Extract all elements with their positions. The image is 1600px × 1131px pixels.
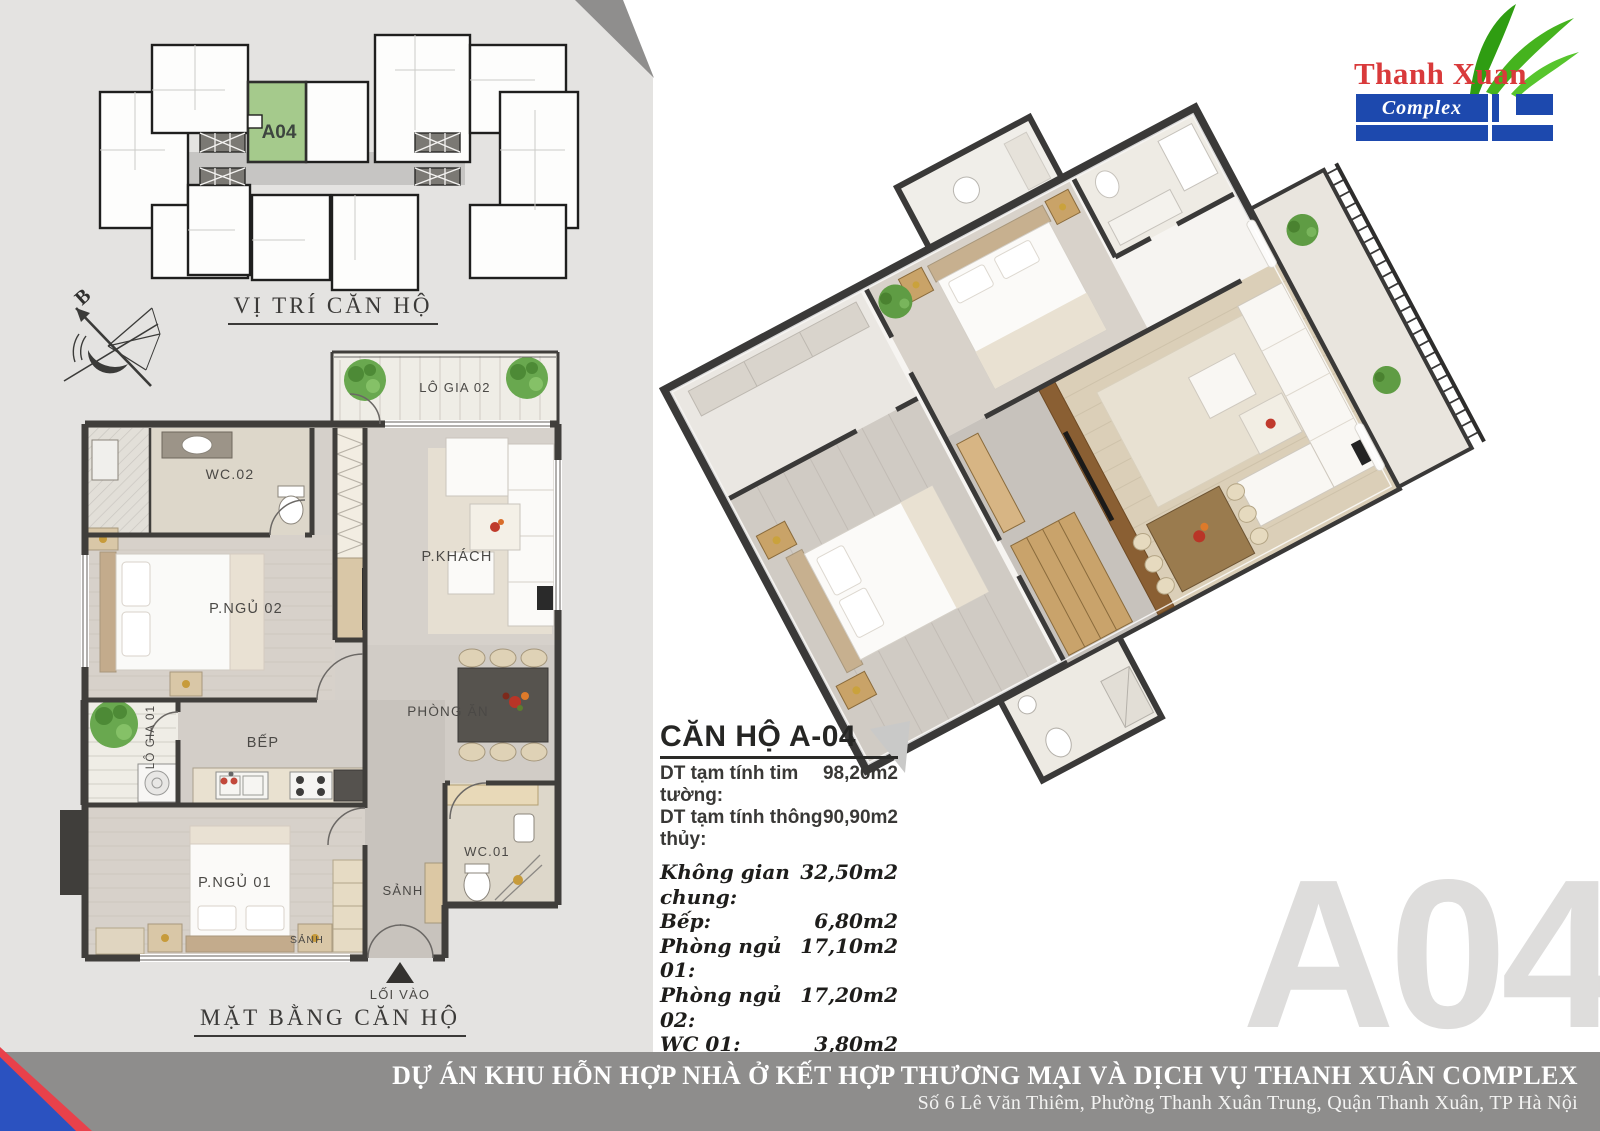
unit-info-title: CĂN HỘ A-04 — [660, 720, 898, 759]
unit-a04-label: A04 — [262, 122, 297, 143]
accent-pillow — [537, 586, 553, 610]
logo-block — [1492, 125, 1553, 141]
closet-column — [335, 428, 366, 638]
unit-block — [332, 195, 418, 290]
logo-bar — [1356, 125, 1488, 141]
unit-watermark: A04 — [1242, 848, 1600, 1060]
shaft-block — [60, 810, 85, 895]
label-balcony1: LÔ GIA 01 — [144, 705, 157, 770]
info-row: DT tạm tính tim tường: 98,20m2 — [660, 763, 898, 807]
logo-complex-bar: Complex — [1356, 94, 1488, 122]
floorplan-title: MẶT BẰNG CĂN HỘ — [160, 1005, 500, 1037]
brochure-page: A04 VỊ TRÍ CĂN HỘ B — [0, 0, 1600, 1131]
logo-block — [1492, 94, 1499, 122]
label-entrance: LỐI VÀO — [370, 987, 430, 1002]
living-furniture — [428, 438, 554, 634]
entrance-arrow-icon — [386, 962, 414, 983]
unit-block — [306, 82, 368, 162]
label-dining: PHÒNG ĂN — [407, 704, 489, 719]
apartment-floorplan: LÔ GIA 02 WC.02 P.KHÁCH P.NGỦ 02 BẾP PHÒ… — [50, 340, 570, 1010]
label-hall: SẢNH — [383, 883, 424, 898]
label-wc1: WC.01 — [464, 844, 510, 859]
thanh-xuan-complex-logo: Thanh Xuan Complex — [1328, 2, 1584, 158]
project-banner: DỰ ÁN KHU HỖN HỢP NHÀ Ở KẾT HỢP THƯƠNG M… — [0, 1052, 1600, 1131]
compass-north-label: B — [71, 284, 96, 309]
label-balcony2: LÔ GIA 02 — [419, 380, 491, 395]
area-row: Bếp:6,80m2 — [660, 909, 898, 934]
banner-project-name: DỰ ÁN KHU HỖN HỢP NHÀ Ở KẾT HỢP THƯƠNG M… — [0, 1052, 1600, 1091]
logo-block — [1516, 94, 1553, 115]
unit-block — [152, 45, 248, 133]
apartment-3d-render — [640, 70, 1560, 790]
label-wc2: WC.02 — [206, 466, 255, 482]
area-row: Phòng ngủ 02:17,20m2 — [660, 983, 898, 1032]
unit-block — [470, 205, 566, 278]
label-bedroom2: P.NGỦ 02 — [209, 599, 283, 617]
unit-a04-highlight: A04 — [248, 82, 306, 162]
label-hall-small: SẢNH — [290, 933, 324, 946]
info-row: DT tạm tính thông thủy: 90,90m2 — [660, 807, 898, 851]
washing-machine-icon — [138, 764, 176, 802]
building-location-map: A04 — [55, 10, 585, 300]
banner-address: Số 6 Lê Văn Thiêm, Phường Thanh Xuân Tru… — [0, 1091, 1600, 1115]
area-row: Không gian chung:32,50m2 — [660, 860, 898, 909]
kitchen-counter — [193, 768, 363, 803]
corner-ribbon — [0, 1047, 100, 1131]
label-bedroom1: P.NGỦ 01 — [198, 873, 272, 891]
location-map-title: VỊ TRÍ CĂN HỘ — [183, 293, 483, 325]
area-row: Phòng ngủ 01:17,10m2 — [660, 934, 898, 983]
label-kitchen: BẾP — [247, 734, 280, 751]
label-living: P.KHÁCH — [422, 548, 493, 565]
unit-block — [252, 195, 330, 280]
logo-name: Thanh Xuan — [1354, 56, 1527, 92]
